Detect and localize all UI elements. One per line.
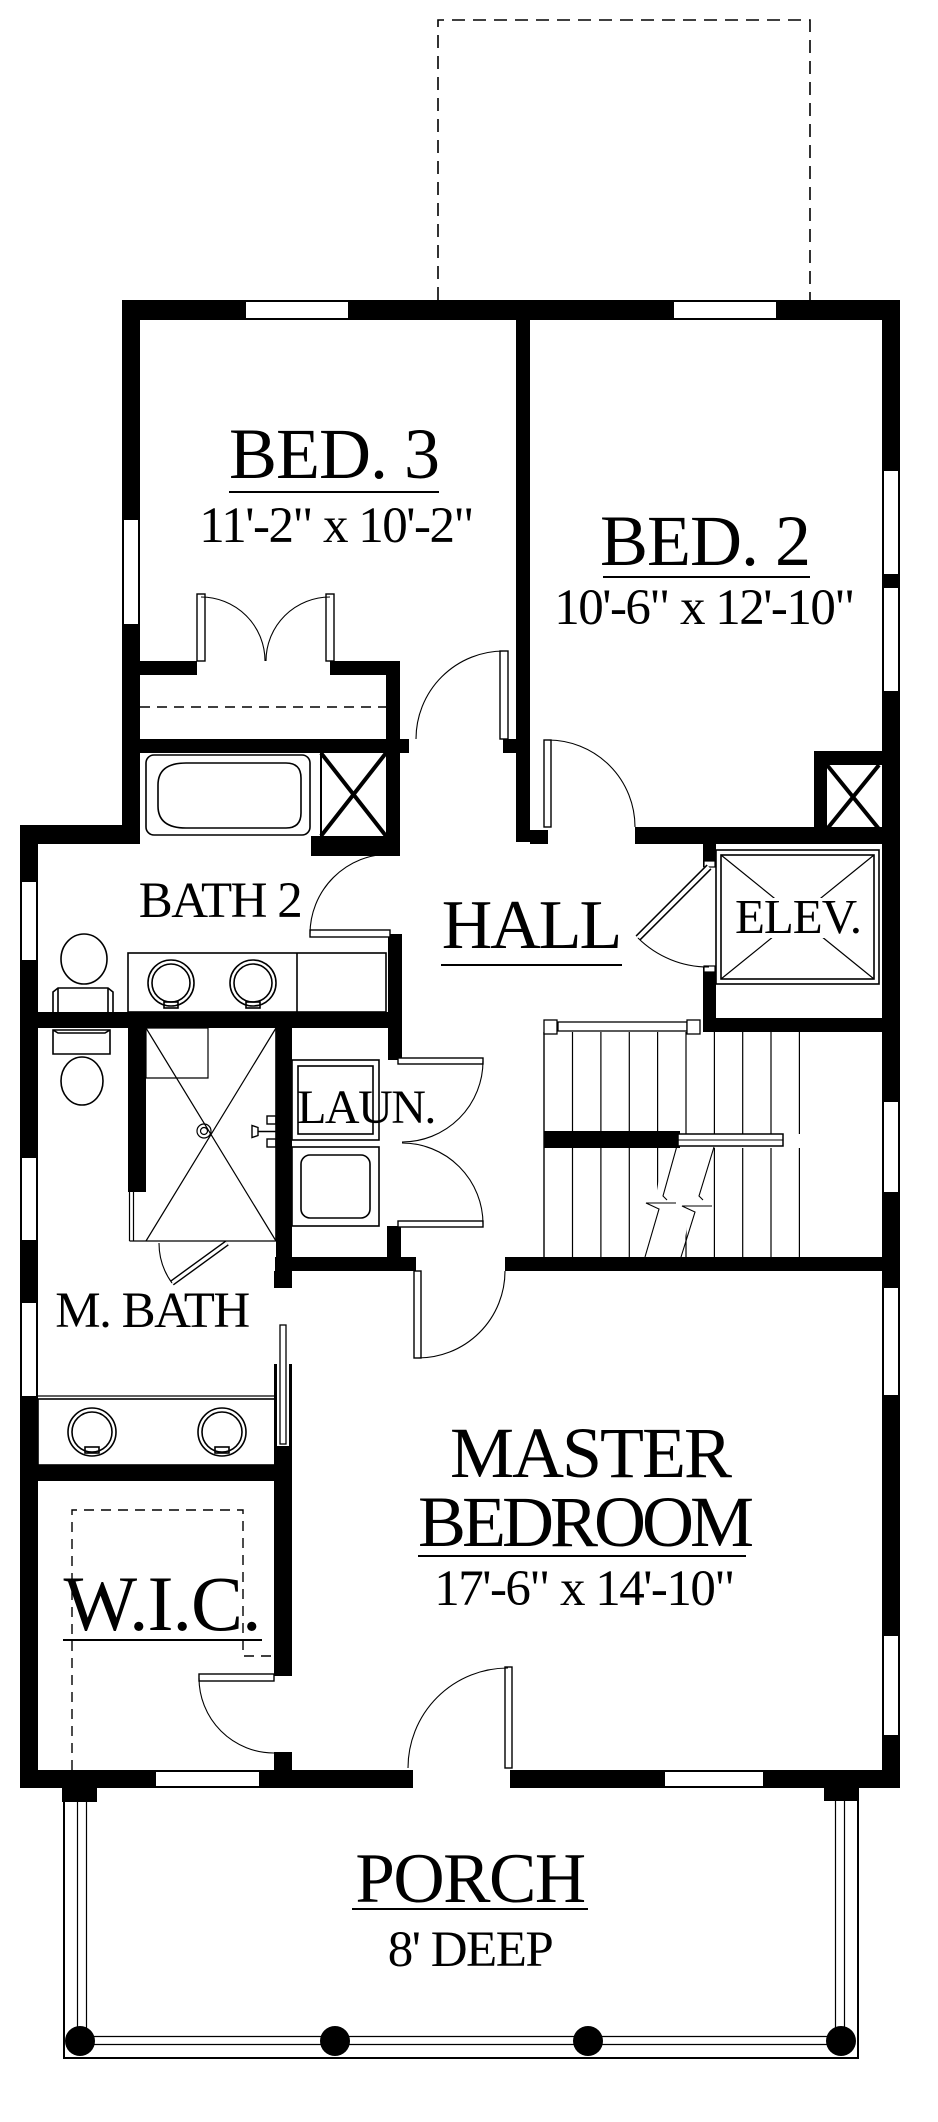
svg-text:BEDROOM: BEDROOM	[418, 1482, 752, 1562]
svg-text:LAUN.: LAUN.	[297, 1081, 435, 1134]
svg-text:BATH 2: BATH 2	[139, 873, 301, 929]
svg-text:HALL: HALL	[442, 887, 621, 964]
svg-text:11'-2" x 10'-2": 11'-2" x 10'-2"	[199, 498, 473, 554]
svg-text:PORCH: PORCH	[355, 1840, 584, 1918]
svg-text:M. BATH: M. BATH	[55, 1283, 249, 1339]
svg-text:BED. 3: BED. 3	[229, 414, 439, 494]
svg-text:10'-6" x 12'-10": 10'-6" x 12'-10"	[554, 580, 853, 636]
svg-text:MASTER: MASTER	[450, 1413, 732, 1493]
svg-text:ELEV.: ELEV.	[735, 889, 861, 944]
svg-text:17'-6" x 14'-10": 17'-6" x 14'-10"	[434, 1561, 733, 1617]
svg-text:W.I.C.: W.I.C.	[64, 1560, 261, 1647]
svg-text:BED. 2: BED. 2	[600, 501, 810, 581]
svg-text:8' DEEP: 8' DEEP	[388, 1922, 553, 1978]
